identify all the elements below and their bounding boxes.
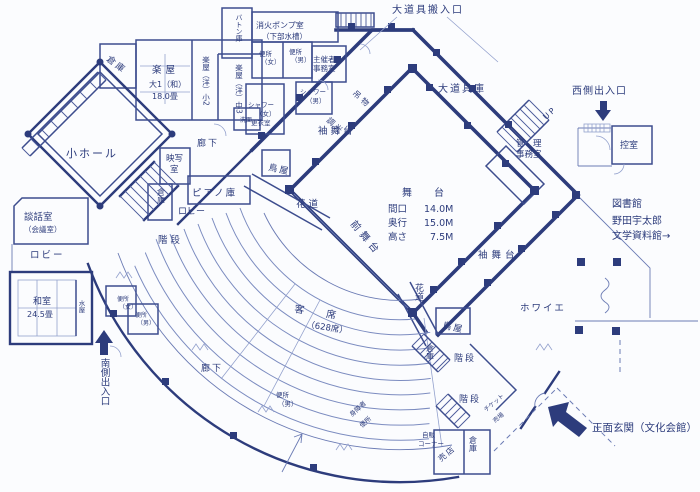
- label-stairs-bottomright: 階段: [459, 393, 481, 405]
- label-spec-okuyuki-v: 15.0M: [424, 218, 453, 229]
- label-spec-maguchi-k: 間口: [388, 204, 407, 215]
- label-library-3: 文学資料館→: [612, 229, 670, 242]
- label-japanese-room-size: 24.5畳: [27, 310, 53, 319]
- label-fire-pump: 消火ポンプ室: [256, 20, 304, 30]
- label-flybar: 吊物: [351, 88, 374, 110]
- label-projection-2: 室: [170, 164, 179, 175]
- label-storage-bottomright: 倉庫: [469, 435, 478, 453]
- label-vending-1: 自販: [422, 430, 436, 439]
- label-dressing-small: 楽屋（洋）小2: [201, 55, 210, 106]
- label-vending-2: コーナー: [418, 440, 444, 448]
- label-prop-storage: 大道具庫: [438, 82, 486, 95]
- label-parlor-sub: （会議室）: [24, 224, 62, 234]
- label-shower-m-1: シャワー: [300, 88, 326, 96]
- label-corridor-top: 廊下: [197, 137, 219, 149]
- label-audience: 客 席: [294, 302, 343, 322]
- label-organizer-1: 主催者: [313, 54, 336, 64]
- label-wc-bottom-1: 便所: [276, 390, 290, 399]
- label-library-1: 図書館: [612, 197, 642, 210]
- label-wc-westm-2: （男）: [137, 320, 155, 327]
- label-changing-room: 更衣室: [251, 118, 271, 127]
- label-library-2: 野田宇太郎: [612, 214, 662, 227]
- label-batten-storage: バトン庫: [235, 14, 243, 43]
- label-shower-w-1: シャワー: [248, 101, 274, 109]
- label-dressing-mid: 楽屋（洋）中3: [234, 63, 243, 114]
- label-waiting-room: 控室: [620, 139, 638, 151]
- label-audience-capacity: （628席）: [306, 319, 349, 336]
- label-side-stage-right: 袖舞台: [478, 249, 519, 261]
- south-exit-arrow: [95, 330, 113, 355]
- hanamichi-walkways: [244, 150, 470, 346]
- label-lobby-center: ロビー: [178, 206, 205, 217]
- label-admin-2: 事務室: [516, 149, 542, 160]
- label-dressing-large: 楽屋: [152, 64, 179, 76]
- label-wc-topm-1: 便所: [289, 47, 303, 56]
- label-japanese-room: 和室: [33, 295, 51, 307]
- label-ticket-2: 売場: [491, 411, 505, 425]
- label-prop-load-entrance: 大道具搬入口: [392, 3, 464, 16]
- loading-leader-lines: [360, 17, 498, 62]
- label-accessible-1: 身障者: [347, 398, 368, 418]
- label-wc-westm-1: 便所: [135, 311, 147, 319]
- label-south-exit: 南側出入口: [99, 357, 111, 405]
- label-wc-westw-1: 便所: [117, 295, 129, 303]
- label-fire-pump-sub: （下部水槽）: [262, 31, 307, 41]
- label-wc-westw-2: （女）: [119, 303, 137, 311]
- label-storage-midright: 倉庫: [426, 343, 435, 361]
- label-admin-1: 管 理: [516, 138, 542, 149]
- main-entrance-arrow: [548, 402, 587, 437]
- label-stage: 舞 台: [402, 186, 450, 199]
- label-wc-topw-1: 便所: [259, 49, 273, 58]
- label-spec-maguchi-v: 14.0M: [424, 204, 453, 215]
- label-corridor-bottom: 廊下: [201, 362, 223, 374]
- label-stairs-center: 階段: [158, 234, 183, 246]
- floor-plan-canvas: 大道具搬入口 西側出入口 正面玄関（文化会館） 南側出入口 図書館 野田宇太郎 …: [0, 0, 700, 492]
- label-organizer-2: 事務室: [313, 63, 336, 73]
- label-storage-center: 倉庫: [157, 187, 166, 205]
- floor-plan-drawing: 大道具搬入口 西側出入口 正面玄関（文化会館） 南側出入口 図書館 野田宇太郎 …: [0, 0, 700, 492]
- label-stairs-midright: 階段: [454, 352, 476, 364]
- label-parlor: 談話室: [24, 211, 53, 223]
- label-foyer: ホワイエ: [520, 303, 566, 314]
- label-up: UP: [541, 105, 558, 122]
- label-mizuya: 水屋: [77, 299, 85, 315]
- label-hanamichi-left: 花道: [296, 198, 321, 210]
- label-main-entrance: 正面玄関（文化会館）: [592, 421, 697, 434]
- label-lobby-left: ロビー: [30, 250, 65, 261]
- label-accessible-2: 便所: [357, 414, 373, 430]
- stairs-northwest-ramp: [22, 72, 106, 156]
- label-west-exit: 西側出入口: [572, 84, 627, 97]
- label-spec-takasa-v: 7.5M: [430, 232, 453, 243]
- north-rooms-walls: [100, 8, 346, 134]
- label-spec-okuyuki-k: 奥行: [388, 217, 408, 229]
- label-wc-topw-2: （女）: [261, 57, 281, 66]
- label-wc-topm-2: （男）: [291, 56, 311, 64]
- label-small-hall: 小ホール: [66, 147, 118, 160]
- label-hanamichi-right: 花道: [413, 282, 424, 302]
- label-dressing-large-size: 18.0畳: [152, 92, 178, 101]
- label-shower-m-2: （男）: [306, 97, 326, 105]
- label-spec-takasa-k: 高さ: [388, 231, 407, 243]
- label-storage-topleft: 倉庫: [104, 53, 129, 76]
- label-shower-w-2: （女）: [256, 109, 276, 118]
- labels: 大道具搬入口 西側出入口 正面玄関（文化会館） 南側出入口 図書館 野田宇太郎 …: [24, 3, 697, 464]
- west-exit-arrow: [595, 101, 611, 121]
- label-dressing-large-type: 大1（和）: [149, 79, 186, 89]
- label-projection-1: 映写: [166, 153, 183, 164]
- label-toya-left: 鳥屋: [267, 161, 291, 177]
- corridor-arcs: [88, 253, 458, 482]
- construction-dashes: [494, 340, 620, 451]
- label-piano-storage: ピアノ庫: [192, 187, 237, 199]
- label-wc-bottom-2: （男）: [278, 400, 298, 408]
